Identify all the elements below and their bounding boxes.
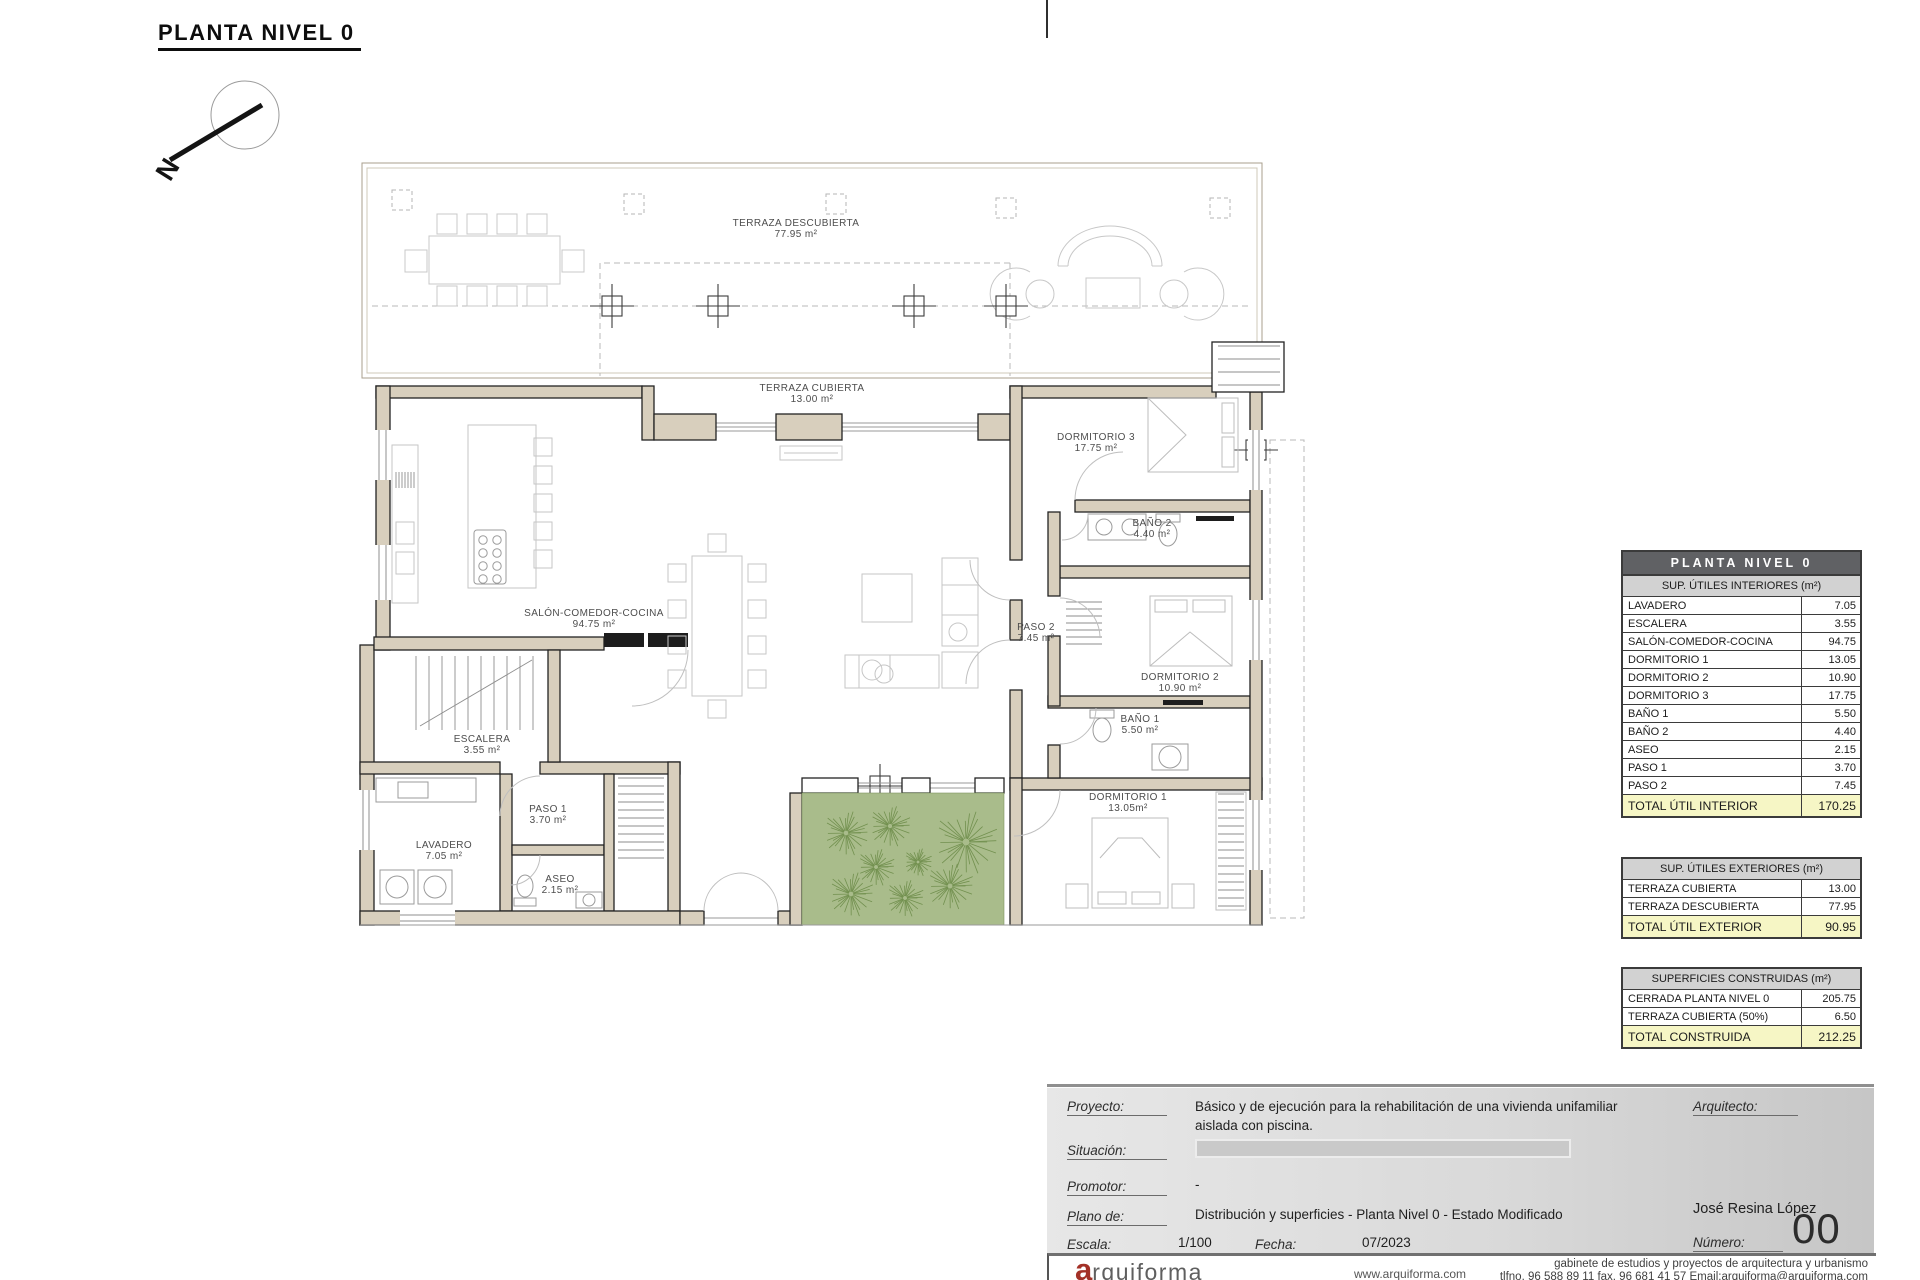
table-row: TERRAZA CUBIERTA (50%)6.50 bbox=[1623, 1008, 1860, 1026]
room-label-paso-2: PASO 27.45 m² bbox=[1017, 622, 1055, 644]
indoor-dining-set bbox=[668, 534, 766, 718]
website-url: www.arquiforma.com bbox=[1354, 1267, 1466, 1280]
table-row: CERRADA PLANTA NIVEL 0205.75 bbox=[1623, 990, 1860, 1008]
terrace-outline bbox=[362, 163, 1262, 378]
table-row: BAÑO 24.40 bbox=[1623, 723, 1860, 741]
field-value-situacion-redacted bbox=[1195, 1139, 1571, 1158]
field-value-plano-de: Distribución y superficies - Planta Nive… bbox=[1195, 1207, 1675, 1222]
field-label-promotor: Promotor: bbox=[1067, 1179, 1167, 1196]
table-subtitle: SUP. ÚTILES EXTERIORES (m²) bbox=[1623, 859, 1860, 880]
interior-door-panels bbox=[604, 516, 1234, 705]
drawing-sheet: PLANTA NIVEL 0 N bbox=[0, 0, 1920, 1280]
table-row: DORMITORIO 317.75 bbox=[1623, 687, 1860, 705]
field-value-fecha: 07/2023 bbox=[1362, 1235, 1411, 1250]
table-row: TERRAZA DESCUBIERTA77.95 bbox=[1623, 898, 1860, 916]
field-label-proyecto: Proyecto: bbox=[1067, 1099, 1167, 1116]
room-label-dormitorio-2: DORMITORIO 210.90 m² bbox=[1141, 672, 1219, 694]
room-label-salon: SALÓN-COMEDOR-COCINA94.75 m² bbox=[524, 608, 664, 630]
firm-contact: gabinete de estudios y proyectos de arqu… bbox=[1500, 1258, 1868, 1280]
field-value-proyecto: Básico y de ejecución para la rehabilita… bbox=[1195, 1097, 1625, 1135]
room-label-escalera: ESCALERA3.55 m² bbox=[454, 734, 511, 756]
room-label-bano-2: BAÑO 24.40 m² bbox=[1132, 518, 1171, 540]
room-label-terraza-descubierta: TERRAZA DESCUBIERTA77.95 m² bbox=[733, 218, 860, 240]
table-row: ESCALERA3.55 bbox=[1623, 615, 1860, 633]
company-logo: arquiforma bbox=[1075, 1257, 1203, 1280]
field-label-escala: Escala: bbox=[1067, 1237, 1157, 1254]
field-label-situacion: Situación: bbox=[1067, 1143, 1167, 1160]
table-total-row: TOTAL ÚTIL EXTERIOR90.95 bbox=[1623, 916, 1860, 937]
living-room-sofas bbox=[845, 558, 978, 688]
plan-number: 00 bbox=[1792, 1205, 1841, 1253]
field-label-fecha: Fecha: bbox=[1255, 1237, 1335, 1254]
column-symbols bbox=[590, 284, 1278, 808]
room-label-aseo: ASEO2.15 m² bbox=[542, 874, 579, 896]
table-total-row: TOTAL CONSTRUIDA212.25 bbox=[1623, 1026, 1860, 1047]
table-sup-utiles-exteriores: SUP. ÚTILES EXTERIORES (m²) TERRAZA CUBI… bbox=[1621, 857, 1862, 939]
table-row: DORMITORIO 113.05 bbox=[1623, 651, 1860, 669]
room-label-dormitorio-3: DORMITORIO 317.75 m² bbox=[1057, 432, 1135, 454]
kitchen-fittings bbox=[392, 425, 552, 603]
table-total-row: TOTAL ÚTIL INTERIOR170.25 bbox=[1623, 795, 1860, 816]
table-row: PASO 13.70 bbox=[1623, 759, 1860, 777]
footer-strip: arquiforma www.arquiforma.com gabinete d… bbox=[1047, 1253, 1876, 1280]
bedroom-furniture bbox=[1066, 398, 1238, 908]
outdoor-dining-set bbox=[405, 214, 584, 306]
table-row: DORMITORIO 210.90 bbox=[1623, 669, 1860, 687]
dashed-column-markers bbox=[392, 190, 1230, 218]
garden-patio bbox=[802, 793, 1004, 925]
table-title: PLANTA NIVEL 0 bbox=[1623, 552, 1860, 576]
room-label-terraza-cubierta: TERRAZA CUBIERTA13.00 m² bbox=[760, 383, 865, 405]
table-sup-utiles-interiores: PLANTA NIVEL 0 SUP. ÚTILES INTERIORES (m… bbox=[1621, 550, 1862, 818]
room-label-dormitorio-1: DORMITORIO 113.05m² bbox=[1089, 792, 1167, 814]
bathroom-fixtures bbox=[376, 446, 1188, 908]
logo-letter-icon: a bbox=[1075, 1253, 1092, 1280]
table-superficies-construidas: SUPERFICIES CONSTRUIDAS (m²) CERRADA PLA… bbox=[1621, 967, 1862, 1049]
table-row: BAÑO 15.50 bbox=[1623, 705, 1860, 723]
field-value-escala: 1/100 bbox=[1178, 1235, 1212, 1250]
table-subtitle: SUPERFICIES CONSTRUIDAS (m²) bbox=[1623, 969, 1860, 990]
field-label-arquitecto: Arquitecto: bbox=[1693, 1099, 1798, 1116]
field-label-plano-de: Plano de: bbox=[1067, 1209, 1167, 1226]
table-row: SALÓN-COMEDOR-COCINA94.75 bbox=[1623, 633, 1860, 651]
table-subtitle: SUP. ÚTILES INTERIORES (m²) bbox=[1623, 576, 1860, 597]
table-row: LAVADERO7.05 bbox=[1623, 597, 1860, 615]
field-value-promotor: - bbox=[1195, 1177, 1200, 1192]
room-label-lavadero: LAVADERO7.05 m² bbox=[416, 840, 472, 862]
field-label-numero: Número: bbox=[1693, 1235, 1783, 1252]
room-label-paso-1: PASO 13.70 m² bbox=[529, 804, 567, 826]
table-row: PASO 27.45 bbox=[1623, 777, 1860, 795]
table-row: ASEO2.15 bbox=[1623, 741, 1860, 759]
title-block: Proyecto: Básico y de ejecución para la … bbox=[1047, 1084, 1874, 1256]
room-label-bano-1: BAÑO 15.50 m² bbox=[1120, 714, 1159, 736]
table-row: TERRAZA CUBIERTA13.00 bbox=[1623, 880, 1860, 898]
